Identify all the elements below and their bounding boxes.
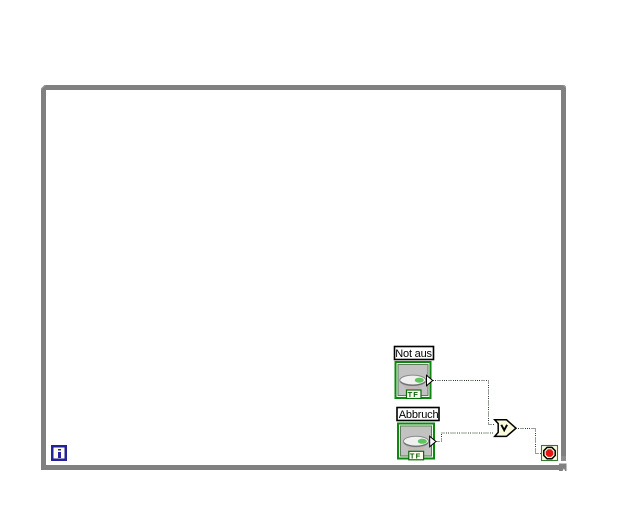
svg-text:Not aus: Not aus bbox=[395, 348, 432, 360]
svg-text:TF: TF bbox=[410, 451, 421, 460]
svg-text:TF: TF bbox=[408, 390, 419, 399]
svg-text:Abbruch: Abbruch bbox=[399, 409, 439, 421]
